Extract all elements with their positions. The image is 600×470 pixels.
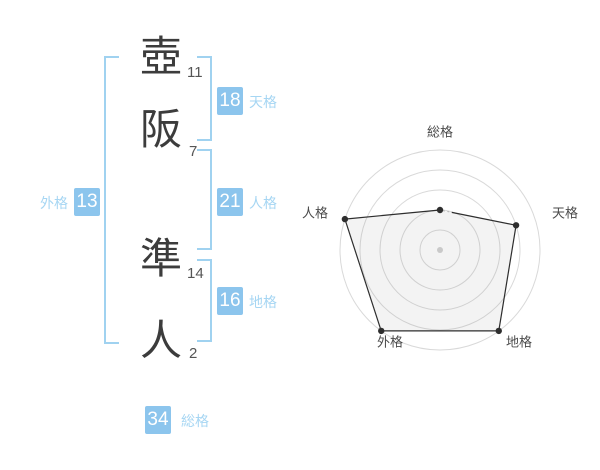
jinkaku-label: 人格: [249, 196, 277, 210]
gaikaku-value-badge: 13: [74, 188, 100, 216]
soukaku-value-badge: 34: [145, 406, 171, 434]
radar-chart-svg: 総格天格地格外格人格: [290, 100, 590, 380]
name-character-1: 壺: [136, 35, 186, 79]
tenkaku-value-badge: 18: [217, 87, 243, 115]
tenkaku-label: 天格: [249, 95, 277, 109]
gaikaku-label: 外格: [40, 196, 68, 210]
jinkaku-bracket: [197, 149, 212, 250]
name-character-3: 準: [136, 237, 186, 281]
fortune-radar-chart: 総格天格地格外格人格: [290, 100, 590, 380]
soukaku-label: 総格: [181, 414, 209, 428]
jinkaku-value-badge: 21: [217, 188, 243, 216]
radar-axis-label: 地格: [506, 335, 532, 350]
name-character-4: 人: [136, 319, 186, 363]
radar-data-point: [342, 216, 348, 222]
radar-data-point: [496, 328, 502, 334]
radar-data-point: [513, 222, 519, 228]
stroke-count-1: 11: [187, 65, 203, 80]
radar-data-point: [378, 328, 384, 334]
chikaku-label: 地格: [249, 295, 277, 309]
stroke-count-3: 14: [187, 266, 204, 281]
radar-axis-label: 人格: [302, 206, 328, 221]
radar-axis-label: 総格: [427, 125, 453, 140]
radar-axis-label: 天格: [552, 206, 578, 221]
radar-center-dot: [437, 247, 443, 253]
name-analysis-page: 壺 阪 準 人 11 7 14 2 18 天格 21 人格 16 地格 13 外…: [0, 0, 600, 470]
stroke-count-4: 2: [189, 346, 197, 361]
gaikaku-bracket: [104, 56, 119, 344]
radar-data-point: [437, 207, 443, 213]
radar-series-area: [345, 210, 516, 331]
name-character-2: 阪: [136, 108, 186, 152]
stroke-count-2: 7: [189, 144, 197, 159]
chikaku-value-badge: 16: [217, 287, 243, 315]
radar-axis-label: 外格: [377, 335, 403, 350]
